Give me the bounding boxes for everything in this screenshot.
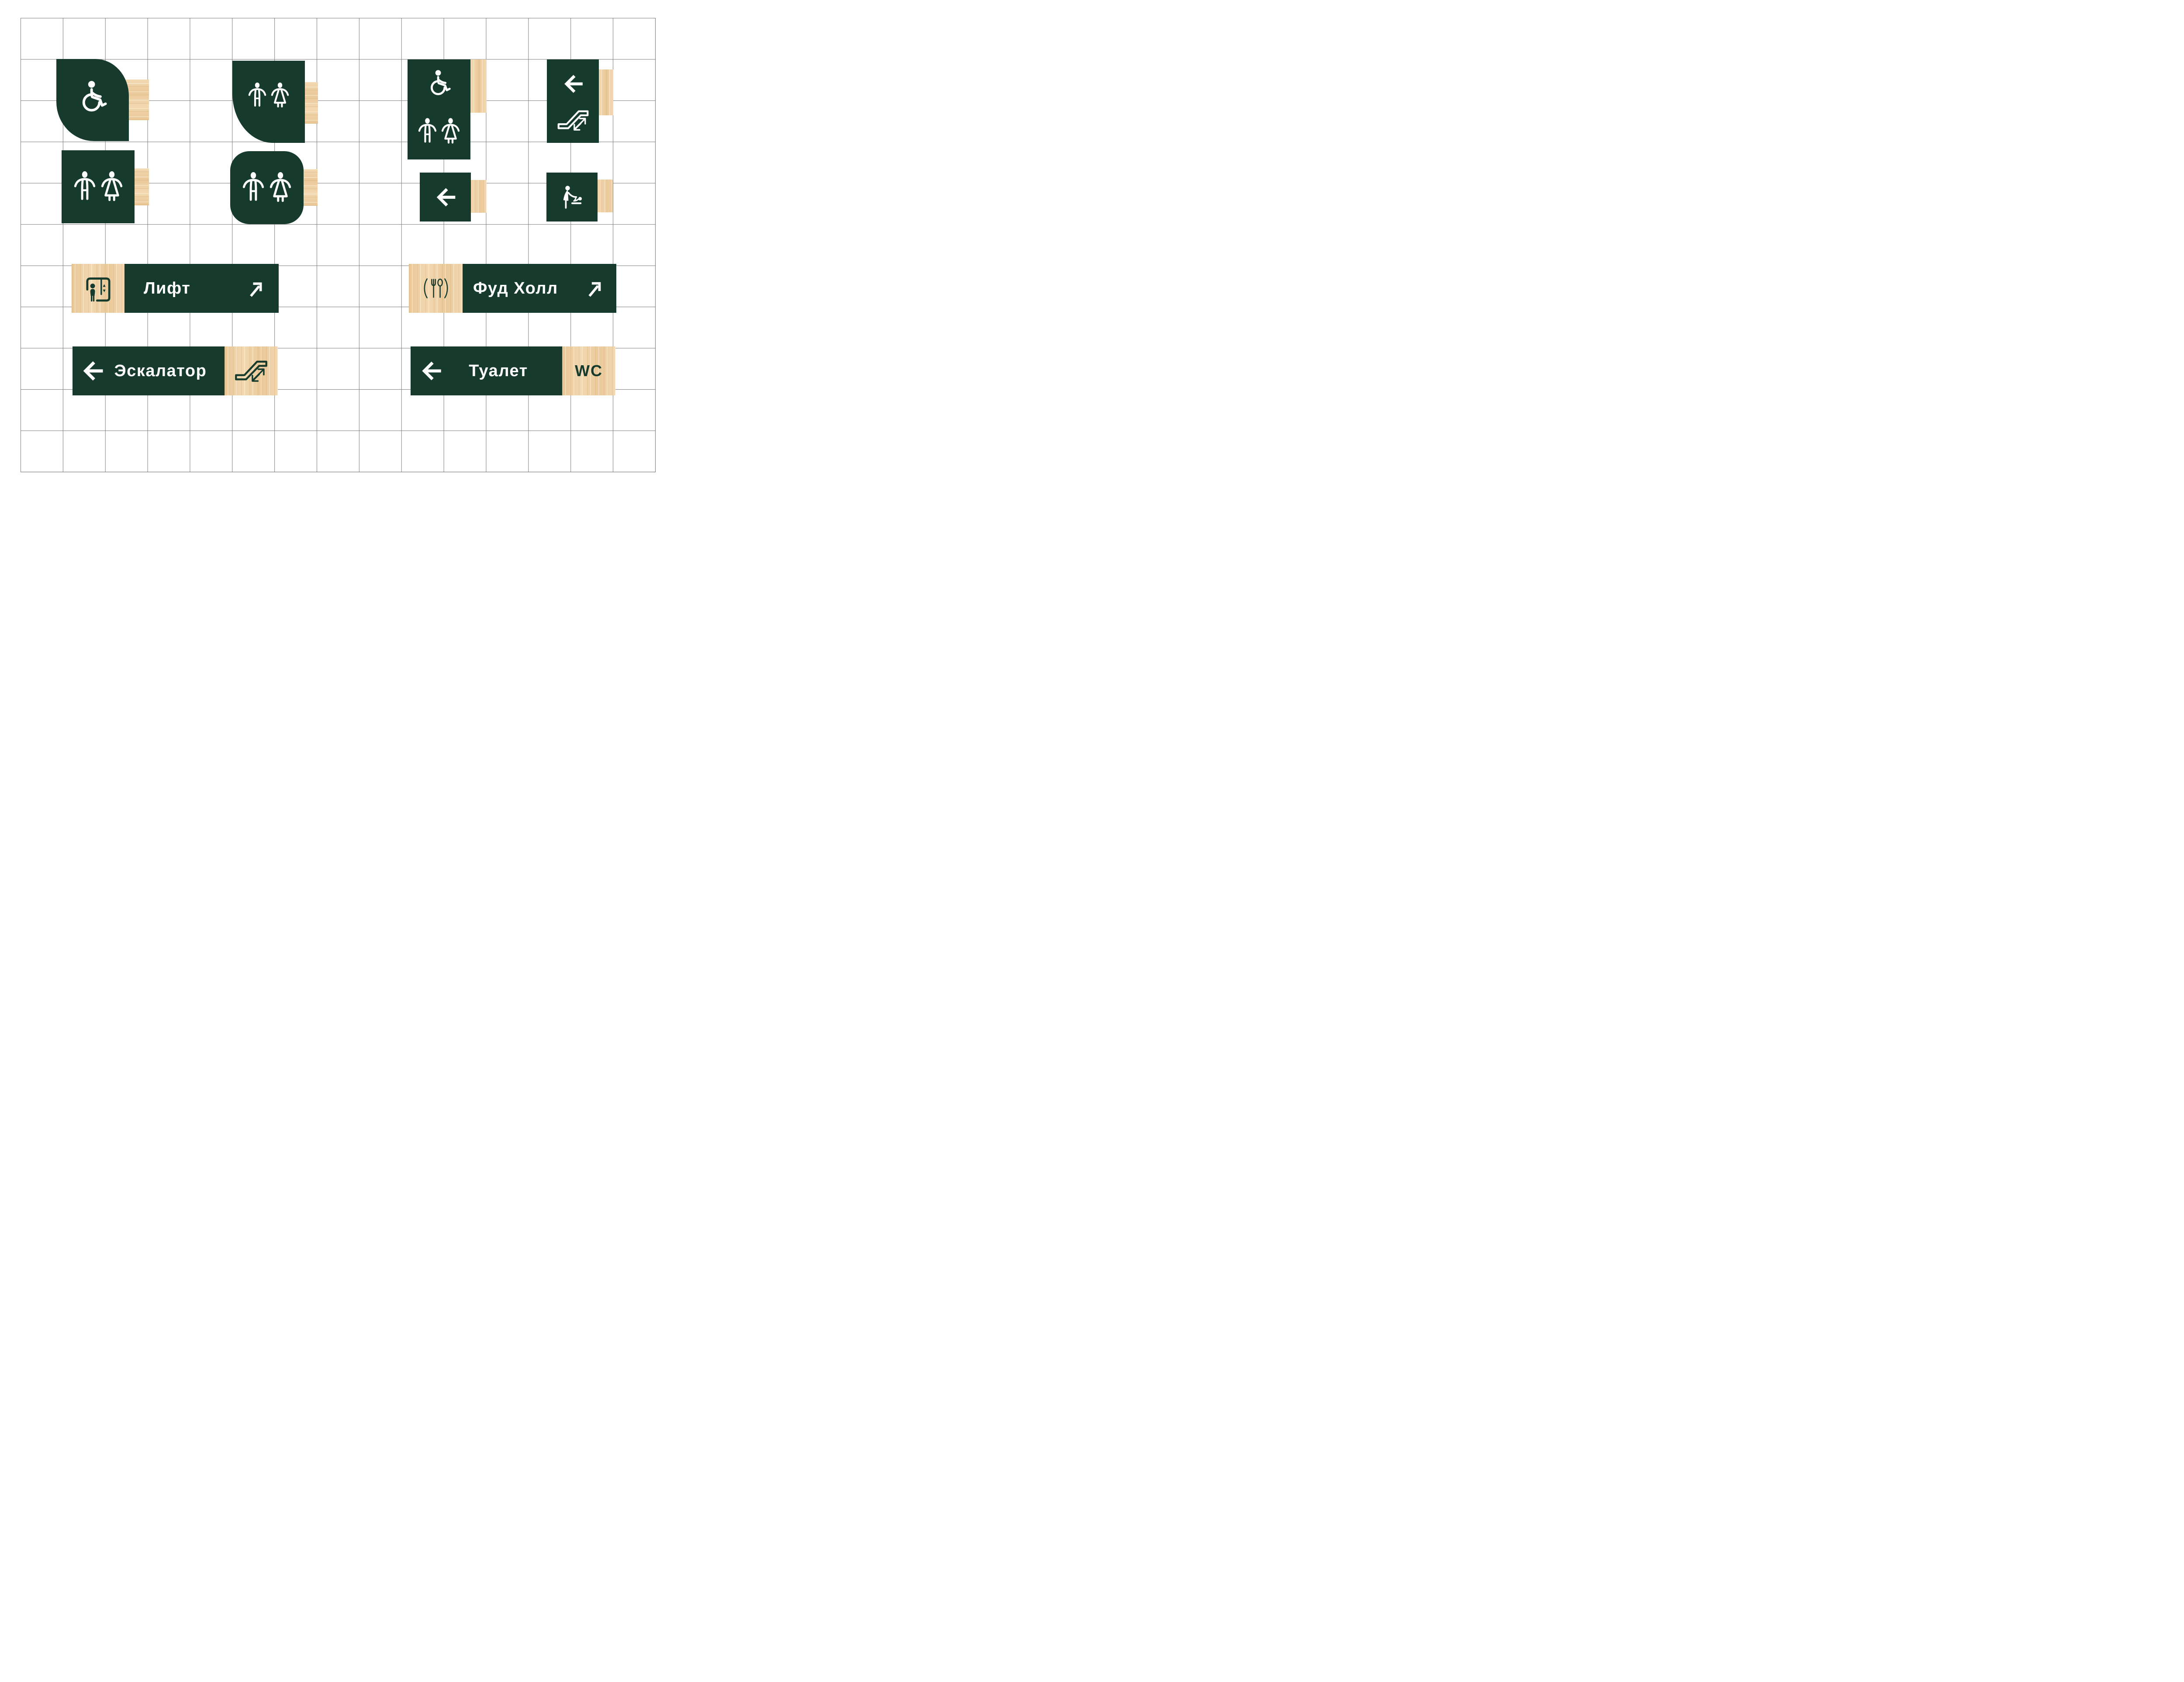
sign-panel: Лифт bbox=[124, 264, 279, 313]
sign-panel bbox=[56, 59, 129, 141]
arrow-up-right-icon bbox=[585, 279, 604, 298]
icon-panel bbox=[409, 264, 463, 313]
man-woman-icon bbox=[71, 168, 125, 206]
sign-label: Лифт bbox=[144, 279, 190, 298]
sign-label: Эскалатор bbox=[114, 362, 207, 381]
sign-panel bbox=[408, 59, 470, 159]
sign-label: Фуд Холл bbox=[473, 279, 558, 298]
wheelchair-icon bbox=[425, 67, 453, 101]
sign-panel bbox=[62, 150, 135, 223]
cutlery-icon bbox=[420, 275, 452, 301]
wc-label: WC bbox=[575, 362, 603, 380]
sign-panel bbox=[546, 173, 598, 221]
wc-panel: WC bbox=[562, 346, 615, 395]
arrow-left-icon bbox=[419, 359, 443, 383]
man-woman-icon bbox=[246, 80, 291, 111]
baby-changing-icon bbox=[558, 183, 586, 211]
sign-label: Туалет bbox=[469, 362, 528, 381]
wheelchair-icon bbox=[76, 79, 110, 118]
arrow-left-icon bbox=[433, 186, 458, 209]
sign-panel bbox=[547, 59, 599, 143]
arrow-left-icon bbox=[80, 359, 105, 383]
sign-panel: Эскалатор bbox=[73, 346, 225, 395]
icon-panel bbox=[72, 264, 124, 313]
elevator-icon bbox=[81, 273, 115, 303]
sign-panel: Туалет bbox=[411, 346, 562, 395]
arrow-up-right-icon bbox=[246, 279, 266, 298]
sign-panel bbox=[420, 173, 471, 221]
man-woman-icon bbox=[240, 169, 294, 207]
signage-design-board: Лифт Фуд Холл Эскалатор bbox=[0, 0, 675, 488]
arrow-left-icon bbox=[561, 73, 585, 95]
sign-panel: Фуд Холл bbox=[463, 264, 616, 313]
sign-panel bbox=[230, 151, 304, 224]
man-woman-icon bbox=[416, 114, 462, 149]
icon-panel bbox=[225, 346, 278, 395]
escalator-icon bbox=[557, 109, 589, 132]
escalator-icon bbox=[234, 359, 269, 383]
